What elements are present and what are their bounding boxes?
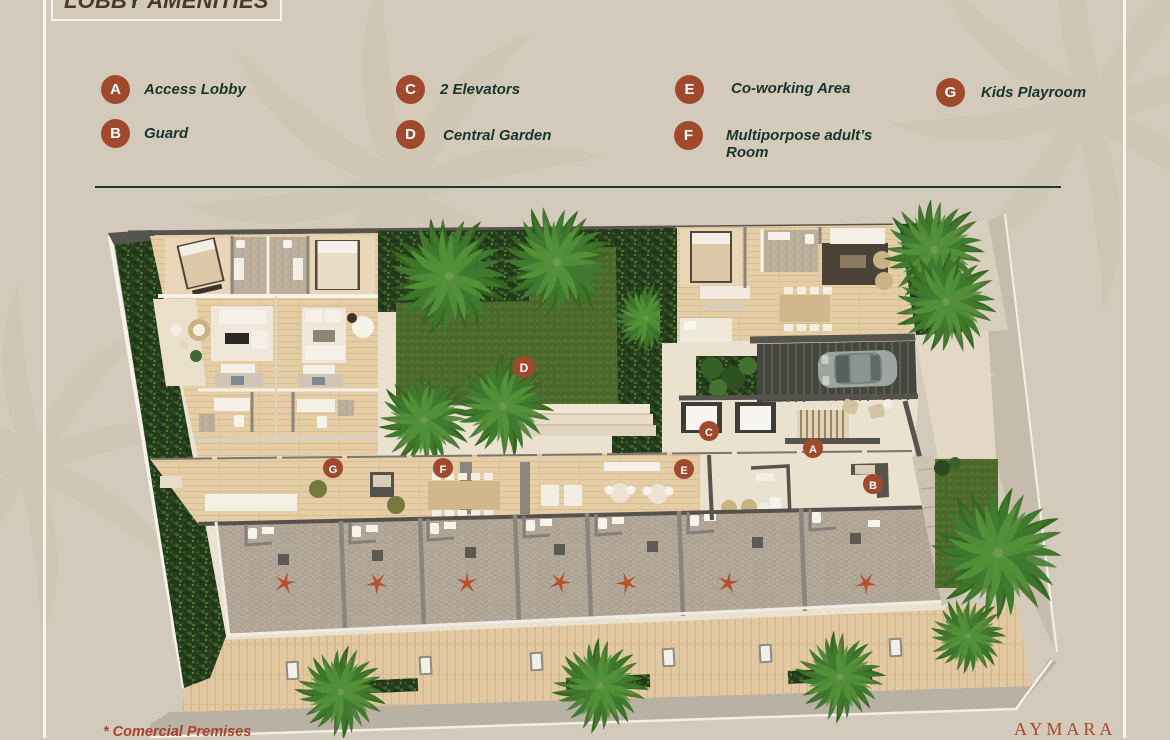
svg-text:A: A (809, 444, 817, 456)
svg-text:E: E (680, 465, 687, 477)
svg-text:F: F (440, 464, 447, 476)
svg-text:B: B (869, 480, 877, 492)
svg-text:D: D (520, 361, 529, 375)
svg-text:G: G (329, 464, 338, 476)
svg-text:C: C (705, 427, 713, 439)
